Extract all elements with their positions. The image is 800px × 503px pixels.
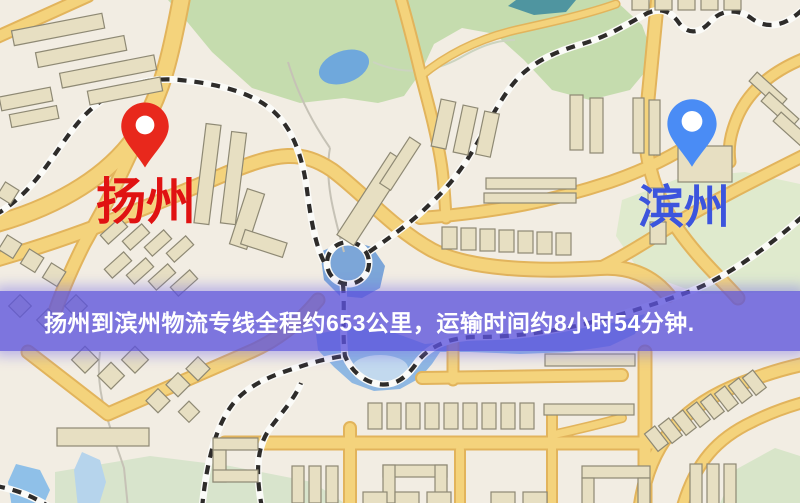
map-screenshot: 扬州 滨州 扬州到滨州物流专线全程约653公里，运输时间约8小时54分钟.: [0, 0, 800, 503]
route-info-text: 扬州到滨州物流专线全程约653公里，运输时间约8小时54分钟.: [0, 304, 695, 338]
map-canvas: [0, 0, 800, 503]
binzhou-marker[interactable]: 滨州: [638, 98, 798, 231]
blue-pin-icon: [664, 98, 720, 168]
yangzhou-label: 扬州: [96, 177, 256, 227]
red-pin-icon: [120, 100, 170, 170]
route-info-banner: 扬州到滨州物流专线全程约653公里，运输时间约8小时54分钟.: [0, 291, 800, 351]
binzhou-label: 滨州: [638, 185, 798, 231]
yangzhou-marker[interactable]: 扬州: [96, 100, 256, 227]
